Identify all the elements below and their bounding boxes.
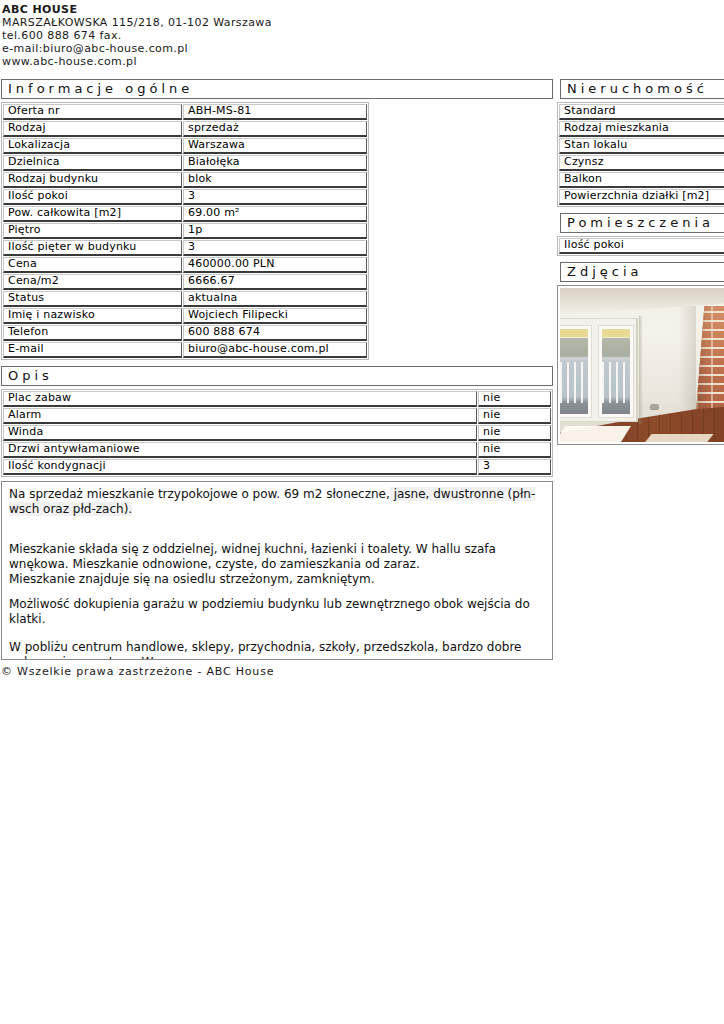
- row-value: ABH-MS-81: [183, 104, 367, 120]
- table-row: Cena 460000.00 PLN: [3, 257, 367, 273]
- row-label: Winda: [3, 425, 477, 441]
- row-label: Rodzaj mieszkania: [559, 121, 724, 137]
- table-row: Lokalizacja Warszawa: [3, 138, 367, 154]
- section-header-general-info: Informacje ogólne: [1, 79, 553, 99]
- description-paragraph: Na sprzedaż mieszkanie trzypokojowe o po…: [9, 487, 545, 517]
- row-label: Imię i nazwisko: [3, 308, 182, 324]
- row-label: Lokalizacja: [3, 138, 182, 154]
- table-row: Alarm nie: [3, 408, 551, 424]
- table-row: Piętro 1p: [3, 223, 367, 239]
- row-label: Ilość kondygnacji: [3, 459, 477, 475]
- row-value: 6666.67: [183, 274, 367, 290]
- photo-balcony-door: [560, 318, 638, 422]
- table-row: Ilość pokoi 3: [3, 189, 367, 205]
- description-paragraph: W pobliżu centrum handlowe, sklepy, przy…: [9, 640, 545, 660]
- section-header-pomieszczenia: Pomieszczenia: [560, 213, 724, 233]
- general-info-table: Oferta nr ABH-MS-81 Rodzaj sprzedaż Loka…: [1, 102, 369, 360]
- row-value: blok: [183, 172, 367, 188]
- section-header-nieruchomosc: Nieruchomość: [560, 79, 724, 99]
- row-label: Stan lokalu: [559, 138, 724, 154]
- row-label: Powierzchnia działki [m2]: [559, 189, 724, 205]
- section-header-opis: Opis: [1, 366, 553, 386]
- table-row: Stan lokalu: [559, 138, 724, 154]
- table-row: Status aktualna: [3, 291, 367, 307]
- table-row: Standard: [559, 104, 724, 120]
- opis-features-table: Plac zabaw nie Alarm nie Winda nie: [1, 389, 553, 477]
- photo-door-shadow: [639, 316, 643, 424]
- row-value: 1p: [183, 223, 367, 239]
- table-row: E-mail biuro@abc-house.com.pl: [3, 342, 367, 358]
- row-value: Białołęka: [183, 155, 367, 171]
- copyright-notice: © Wszelkie prawa zastrzeżone - ABC House: [1, 665, 553, 678]
- table-row: Dzielnica Białołęka: [3, 155, 367, 171]
- description-text: Mieszkanie znajduje się na osiedlu strze…: [9, 572, 545, 587]
- table-row: Oferta nr ABH-MS-81: [3, 104, 367, 120]
- photo-brick-wall: [696, 306, 724, 412]
- photo-frame: [557, 285, 724, 445]
- row-value: 3: [478, 459, 551, 475]
- row-value: nie: [478, 391, 551, 407]
- row-label: Oferta nr: [3, 104, 182, 120]
- description-box: Na sprzedaż mieszkanie trzypokojowe o po…: [1, 481, 553, 660]
- row-label: Rodzaj budynku: [3, 172, 182, 188]
- table-row: Imię i nazwisko Wojciech Filipecki: [3, 308, 367, 324]
- row-value: nie: [478, 442, 551, 458]
- row-label: Pow. całkowita [m2]: [3, 206, 182, 222]
- row-label: Cena/m2: [3, 274, 182, 290]
- photo-ceiling: [560, 288, 724, 318]
- row-label: Status: [3, 291, 182, 307]
- company-email: e-mail:biuro@abc-house.com.pl: [2, 42, 272, 55]
- table-row: Cena/m2 6666.67: [3, 274, 367, 290]
- apartment-interior-photo[interactable]: [560, 288, 724, 442]
- listing-page: ABC HOUSE MARSZAŁKOWSKA 115/218, 01-102 …: [0, 0, 724, 1024]
- table-row: Winda nie: [3, 425, 551, 441]
- row-value: Warszawa: [183, 138, 367, 154]
- table-row: Plac zabaw nie: [3, 391, 551, 407]
- table-row: Rodzaj sprzedaż: [3, 121, 367, 137]
- description-text: Mieszkanie składa się z oddzielnej, widn…: [9, 542, 545, 572]
- row-label: Alarm: [3, 408, 477, 424]
- description-text: Na sprzedaż mieszkanie trzypokojowe o po…: [9, 487, 390, 501]
- nieruchomosc-table: Standard Rodzaj mieszkania Stan lokalu C…: [557, 102, 724, 207]
- row-value: aktualna: [183, 291, 367, 307]
- table-row: Powierzchnia działki [m2]: [559, 189, 724, 205]
- table-row: Drzwi antywłamaniowe nie: [3, 442, 551, 458]
- row-label: Standard: [559, 104, 724, 120]
- table-row: Rodzaj budynku blok: [3, 172, 367, 188]
- row-value: 600 888 674: [183, 325, 367, 341]
- table-row: Ilość kondygnacji 3: [3, 459, 551, 475]
- photo-door-pane: [598, 325, 634, 418]
- row-label: Plac zabaw: [3, 391, 477, 407]
- section-header-zdjecia: Zdjęcia: [560, 262, 724, 282]
- photo-sunlight-patch: [644, 434, 713, 442]
- row-label: Rodzaj: [3, 121, 182, 137]
- table-row: Ilość pokoi: [559, 238, 724, 254]
- table-row: Balkon: [559, 172, 724, 188]
- company-header: ABC HOUSE MARSZAŁKOWSKA 115/218, 01-102 …: [2, 3, 272, 68]
- company-phone: tel.600 888 674 fax.: [2, 29, 272, 42]
- row-label: Czynsz: [559, 155, 724, 171]
- row-label: Dzielnica: [3, 155, 182, 171]
- table-row: Ilość pięter w budynku 3: [3, 240, 367, 256]
- row-label: Telefon: [3, 325, 182, 341]
- pomieszczenia-table: Ilość pokoi: [557, 236, 724, 256]
- company-name: ABC HOUSE: [2, 3, 272, 16]
- row-label: Piętro: [3, 223, 182, 239]
- row-value: 3: [183, 189, 367, 205]
- photo-balcony-railing: [602, 362, 630, 403]
- description-paragraph: Możliwość dokupienia garażu w podziemiu …: [9, 597, 545, 627]
- photo-door-glass: [560, 329, 588, 414]
- row-value: nie: [478, 408, 551, 424]
- row-label: Ilość pokoi: [3, 189, 182, 205]
- table-row: Pow. całkowita [m2] 69.00 m²: [3, 206, 367, 222]
- table-row: Czynsz: [559, 155, 724, 171]
- table-row: Telefon 600 888 674: [3, 325, 367, 341]
- description-paragraph: Mieszkanie składa się z oddzielnej, widn…: [9, 542, 545, 587]
- photo-door-pane: [560, 325, 592, 418]
- row-label: E-mail: [3, 342, 182, 358]
- row-value: 69.00 m²: [183, 206, 367, 222]
- photo-sunlight-patch: [560, 426, 631, 442]
- row-label: Drzwi antywłamaniowe: [3, 442, 477, 458]
- photo-wall-socket: [650, 404, 659, 409]
- photo-balcony-railing: [560, 362, 588, 403]
- row-value: sprzedaż: [183, 121, 367, 137]
- row-value: 3: [183, 240, 367, 256]
- row-value: 460000.00 PLN: [183, 257, 367, 273]
- row-label: Ilość pięter w budynku: [3, 240, 182, 256]
- row-value: nie: [478, 425, 551, 441]
- row-label: Ilość pokoi: [559, 238, 724, 254]
- row-label: Balkon: [559, 172, 724, 188]
- main-column: Informacje ogólne Oferta nr ABH-MS-81 Ro…: [1, 79, 553, 678]
- row-value: biuro@abc-house.com.pl: [183, 342, 367, 358]
- company-address: MARSZAŁKOWSKA 115/218, 01-102 Warszawa: [2, 16, 272, 29]
- company-website: www.abc-house.com.pl: [2, 55, 272, 68]
- sidebar: Nieruchomość Standard Rodzaj mieszkania …: [557, 79, 724, 445]
- photo-door-glass: [602, 329, 630, 414]
- table-row: Rodzaj mieszkania: [559, 121, 724, 137]
- photo-wall-shadow: [678, 306, 696, 414]
- row-value: Wojciech Filipecki: [183, 308, 367, 324]
- row-label: Cena: [3, 257, 182, 273]
